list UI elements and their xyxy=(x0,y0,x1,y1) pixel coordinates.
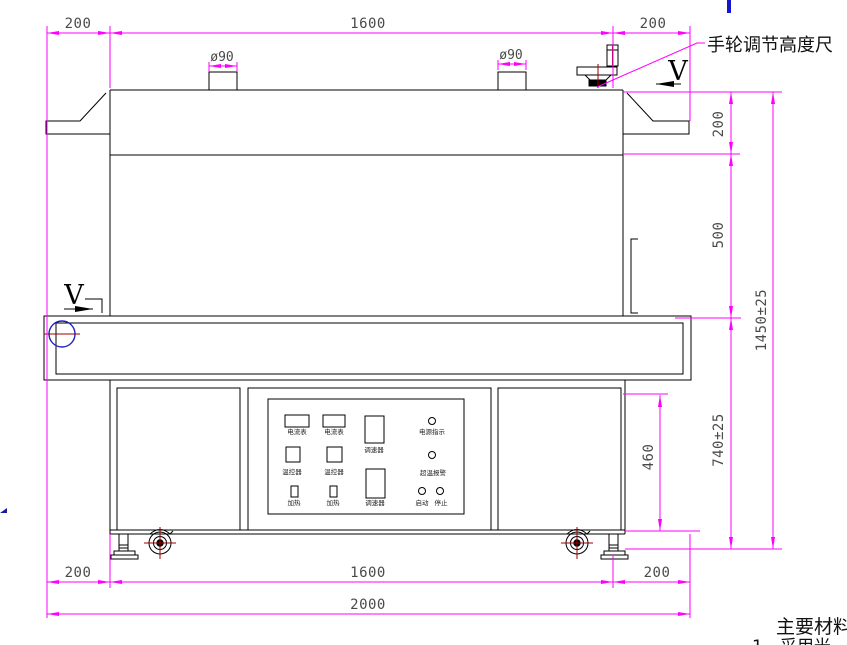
handwheel-note-label: 手轮调节高度尺 xyxy=(707,35,833,56)
heat-switch1 xyxy=(291,486,298,497)
cabinet-frame xyxy=(110,380,625,534)
dim-text-bottom-left: 200 xyxy=(65,565,92,581)
section-v-left-label: V xyxy=(63,280,84,311)
conveyor-belt xyxy=(56,323,683,374)
dim-text-stack-left: ø90 xyxy=(210,50,233,65)
dim-text-top-left: 200 xyxy=(65,16,92,32)
heat1-label: 加热 xyxy=(288,498,302,507)
caster-right xyxy=(561,527,593,559)
temp-controller2-label: 温控器 xyxy=(324,467,344,476)
blue-mark-left xyxy=(0,508,7,513)
inner-lamp-brackets xyxy=(85,239,638,313)
stop-label: 停止 xyxy=(435,498,449,507)
dimension-annotations: 200 1600 200 ø90 ø90 200 500 740±25 1450… xyxy=(47,16,782,618)
ammeter2-label: 电流表 xyxy=(324,427,344,436)
cabinet-middle-door xyxy=(248,388,491,530)
temp-controller1 xyxy=(286,447,300,462)
section-v-right-label: V xyxy=(667,56,688,87)
leveling-foot-left xyxy=(111,534,138,559)
dim-text-right-200: 200 xyxy=(711,111,727,138)
power-indicator-label: 电源指示 xyxy=(419,427,446,436)
dim-text-right-500: 500 xyxy=(711,222,727,249)
cabinet-left-door xyxy=(117,388,240,530)
exhaust-stacks xyxy=(209,72,526,90)
oven-body xyxy=(46,72,689,316)
temp-controller2 xyxy=(327,447,342,462)
notes-title: 主要材料 xyxy=(776,616,847,638)
feet-and-casters xyxy=(111,527,628,559)
dim-text-right-740: 740±25 xyxy=(711,413,727,467)
power-indicator-lamp xyxy=(429,418,436,425)
cad-drawing-page: { "drawing": { "dims": { "top_left": "20… xyxy=(0,0,847,645)
ammeter2 xyxy=(323,415,345,427)
material-notes: 主要材料 1、采用光 xyxy=(752,616,847,645)
dim-text-bottom-right: 200 xyxy=(644,565,671,581)
dim-text-top-right: 200 xyxy=(640,16,667,32)
heat2-label: 加热 xyxy=(327,498,341,507)
cabinet-right-door xyxy=(498,388,621,530)
dim-text-stack-right: ø90 xyxy=(499,48,522,63)
oven-outline xyxy=(46,90,689,316)
dim-text-right-1450: 1450±25 xyxy=(754,289,770,352)
extension-lines xyxy=(47,26,782,618)
start-label: 启动 xyxy=(416,498,430,507)
dim-text-bottom-mid: 1600 xyxy=(350,565,386,581)
ammeter1-label: 电流表 xyxy=(287,427,307,436)
dim-text-top-mid: 1600 xyxy=(350,16,386,32)
heat-switch2 xyxy=(330,486,337,497)
start-button xyxy=(419,488,426,495)
notes-line1: 1、采用光 xyxy=(752,637,831,645)
leveling-foot-right xyxy=(601,534,628,559)
control-panel: 电流表 电流表 调速器 电源指示 温控器 温控器 超温报警 加热 加热 调速器 … xyxy=(268,399,464,514)
handwheel-disc xyxy=(577,67,617,75)
conveyor-outer xyxy=(44,316,691,380)
engineering-drawing-canvas: 电流表 电流表 调速器 电源指示 温控器 温控器 超温报警 加热 加热 调速器 … xyxy=(0,0,847,645)
blue-tick-top xyxy=(727,0,731,13)
speed1-label: 调速器 xyxy=(364,445,384,454)
base-cabinet xyxy=(110,380,625,534)
overtemp-alarm-lamp xyxy=(429,452,436,459)
dim-text-bottom-overall: 2000 xyxy=(350,597,386,613)
dim-text-cabinet-460: 460 xyxy=(641,444,657,471)
handwheel-assembly xyxy=(577,45,618,88)
section-markers: V V xyxy=(63,56,688,311)
temp-controller1-label: 温控器 xyxy=(282,467,302,476)
speed-controller1 xyxy=(365,416,384,443)
speed-controller2 xyxy=(366,469,385,498)
stop-button xyxy=(437,488,444,495)
conveyor xyxy=(44,316,691,380)
handwheel-callout: 手轮调节高度尺 xyxy=(597,35,833,87)
ammeter1 xyxy=(285,415,309,427)
speed2-label: 调速器 xyxy=(365,498,385,507)
overtemp-alarm-label: 超温报警 xyxy=(420,468,447,477)
caster-left xyxy=(144,527,176,559)
